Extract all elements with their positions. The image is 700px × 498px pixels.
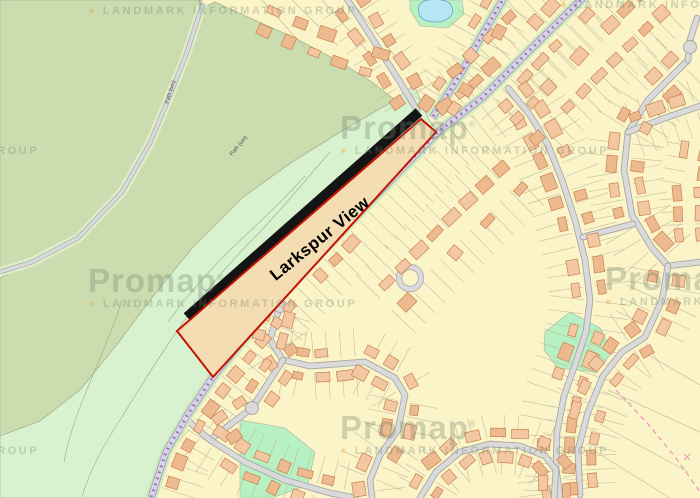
house [586, 233, 600, 248]
house [512, 429, 529, 439]
house [352, 481, 367, 497]
map-viewport[interactable]: Path (um)Path (um) Promap®● LANDMARK INF… [0, 0, 700, 498]
house [589, 433, 599, 445]
house [593, 256, 605, 273]
house [597, 280, 607, 295]
house [694, 187, 700, 197]
house [606, 155, 618, 173]
house [695, 205, 700, 221]
house [296, 347, 309, 357]
house [637, 201, 650, 216]
pond [418, 0, 452, 22]
water [418, 0, 452, 22]
house [674, 228, 684, 242]
house [538, 475, 548, 490]
house [672, 274, 686, 287]
turning-head [246, 402, 259, 415]
house [630, 160, 644, 172]
house [613, 207, 625, 219]
house [672, 185, 682, 201]
house [673, 207, 683, 222]
house [587, 473, 598, 488]
map-canvas: Path (um)Path (um) [0, 0, 700, 498]
house [490, 428, 505, 437]
turning-head [684, 41, 697, 54]
house [498, 451, 514, 463]
house [571, 283, 581, 298]
house [608, 132, 621, 150]
house [609, 183, 620, 198]
house [562, 484, 570, 498]
house [564, 437, 574, 453]
house [566, 259, 580, 276]
house [647, 270, 658, 282]
house [336, 370, 353, 382]
house [409, 405, 418, 416]
house [695, 227, 700, 241]
house [316, 372, 330, 382]
house [587, 450, 597, 465]
house [314, 348, 328, 358]
